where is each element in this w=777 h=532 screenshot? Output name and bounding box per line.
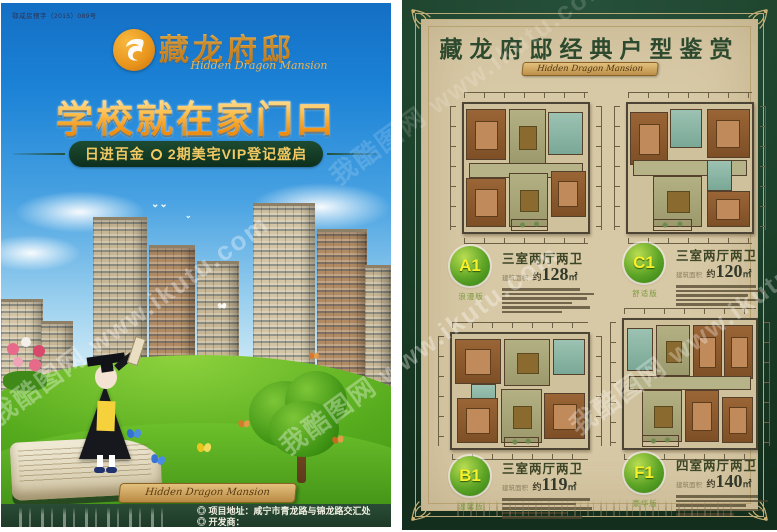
floorplan-f1 — [610, 308, 770, 460]
floorplan-back-page: 藏龙府邸经典户型鉴赏 Hidden Dragon Mansion — [402, 0, 777, 530]
area-value: 140 — [715, 471, 742, 491]
feature-lines — [676, 283, 766, 308]
feature-lines — [502, 286, 594, 315]
script-ribbon: Hidden Dragon Mansion — [118, 483, 297, 503]
corner-flourish-icon — [410, 488, 444, 522]
unit-badge: C1 — [624, 243, 664, 283]
area-value: 128 — [541, 264, 568, 284]
unit-info-c1: C1 舒适版 三室两厅两卫 建筑面积 约120㎡ — [624, 241, 777, 319]
bird-icon: ⌄⌄ — [151, 199, 168, 210]
butterfly-white — [218, 303, 226, 309]
unit-edition: 浪漫版 — [451, 291, 491, 302]
skyline-silhouette — [19, 507, 169, 527]
unit-info-f1: F1 豪华版 四室两厅两卫 建筑面积 约140㎡ — [624, 451, 777, 529]
presale-permit-number: 鄂咸房预字（2015）089号 — [12, 10, 97, 20]
subtitle-ribbon: Hidden Dragon Mansion — [521, 62, 658, 76]
girl-gown-trim — [96, 401, 115, 432]
cloud — [1, 235, 81, 271]
area-value: 120 — [715, 261, 742, 281]
girl-shoes — [94, 467, 105, 473]
floorplan-b1 — [438, 322, 602, 460]
unit-badge: B1 — [450, 456, 490, 496]
unit-edition: 舒适版 — [625, 288, 665, 299]
main-headline: 学校就在家门口 — [1, 89, 391, 143]
project-address: ◎ 项目地址：咸宁市青龙路与锦龙路交汇处 — [197, 506, 391, 517]
area-value: 119 — [541, 474, 567, 494]
flower-cluster — [1, 333, 63, 399]
brand-name-english: Hidden Dragon Mansion — [159, 59, 359, 72]
floorplan-c1 — [614, 92, 766, 244]
dragon-logo-icon — [113, 29, 155, 71]
butterfly-blue — [127, 429, 141, 439]
vip-banner: 日进百金 2期美宅VIP登记盛启 — [1, 141, 391, 167]
bird-icon: ⌄ — [185, 211, 192, 220]
banner-line-right — [327, 153, 379, 155]
banner-line-left — [13, 153, 65, 155]
unit-badge: F1 — [624, 453, 664, 493]
area-label: 建筑面积 — [502, 275, 528, 282]
developer-line: ◎ 开发商： — [197, 517, 391, 527]
page-title: 藏龙府邸经典户型鉴赏 — [402, 30, 777, 64]
banner-text-left: 日进百金 — [85, 144, 145, 164]
faint-skyline — [457, 500, 732, 516]
unit-info-a1: A1 浪漫版 三室两厅两卫 建筑面积 约128㎡ — [450, 244, 610, 322]
unit-info-b1: B1 温馨版 三室两厅两卫 建筑面积 约119㎡ — [450, 454, 610, 532]
unit-badge: A1 — [450, 246, 490, 286]
butterfly-orange — [309, 353, 319, 360]
floorplan-a1 — [450, 92, 602, 244]
butterfly-orange — [238, 420, 249, 428]
banner-dot-icon — [151, 149, 162, 160]
footer-strip: ◎ 项目地址：咸宁市青龙路与锦龙路交汇处 ◎ 开发商： — [1, 504, 391, 527]
banner-text-right: 2期美宅VIP登记盛启 — [168, 144, 307, 164]
butterfly-yellow — [197, 443, 211, 453]
poster-front-page: 鄂咸房预字（2015）089号 藏龙府邸 Hidden Dragon Mansi… — [1, 3, 391, 527]
tree-canopy — [269, 401, 339, 457]
